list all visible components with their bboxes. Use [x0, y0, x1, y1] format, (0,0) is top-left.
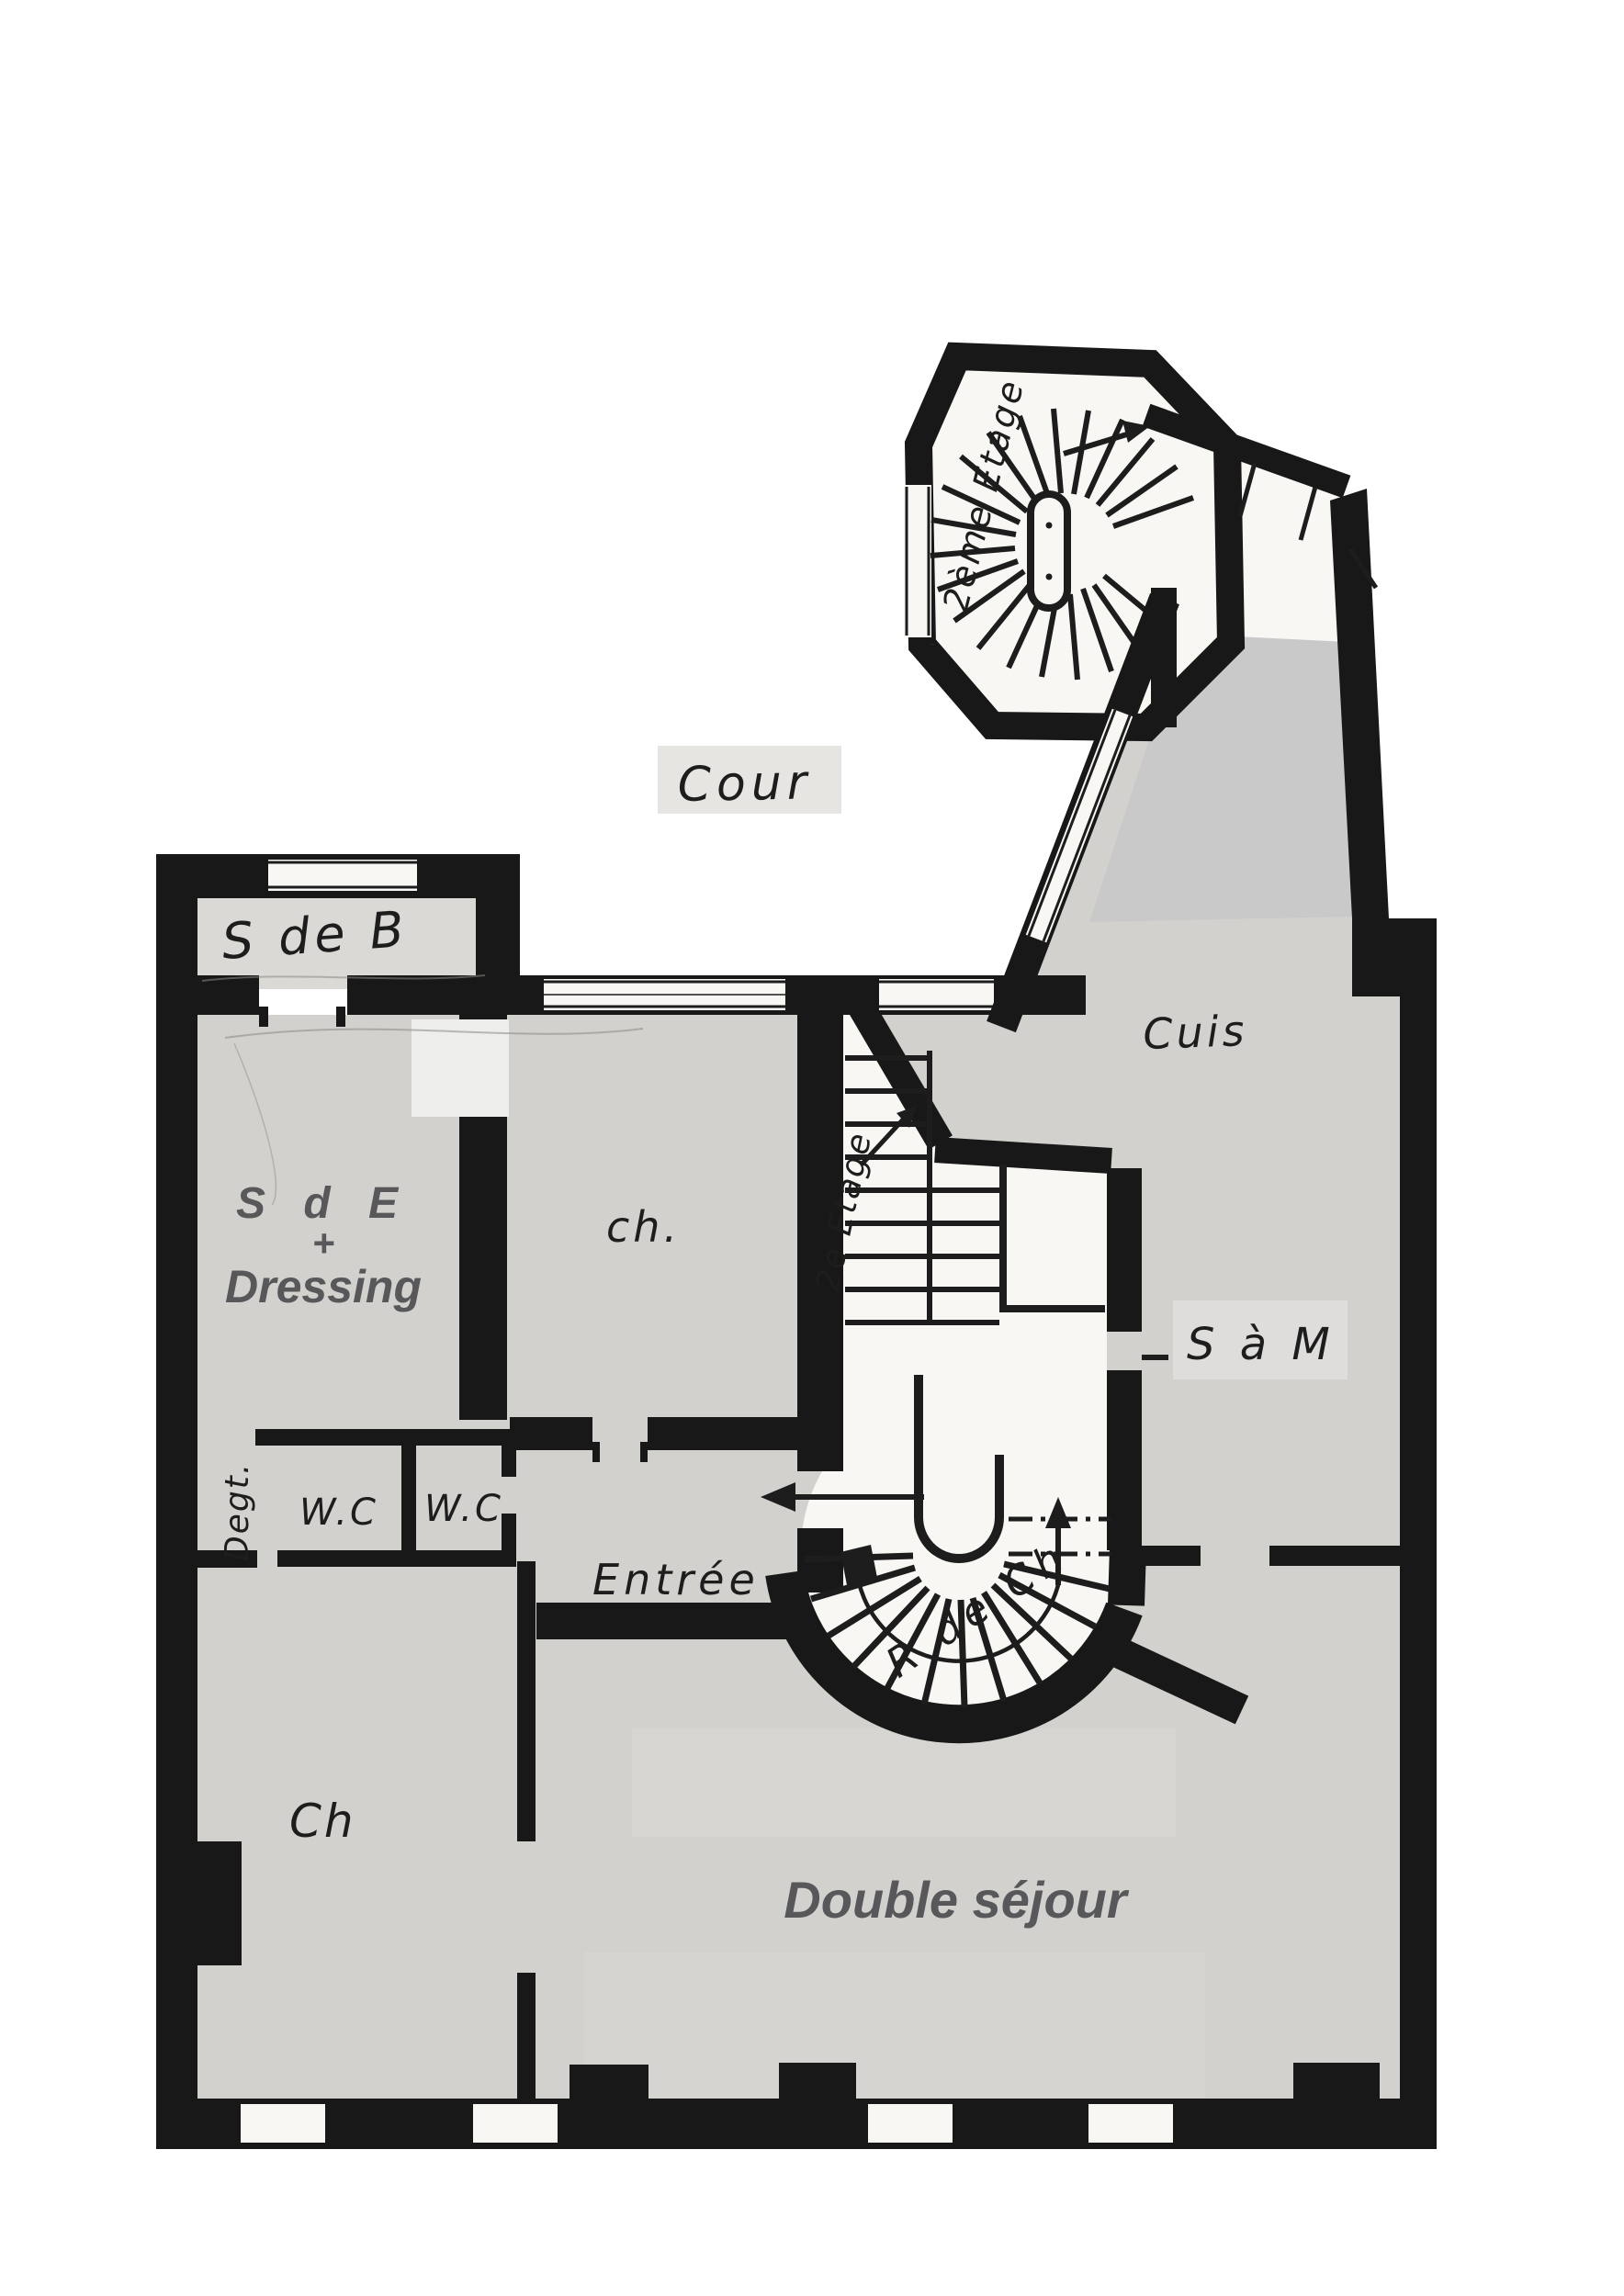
chambre-bottom-label: Ch [289, 1795, 356, 1848]
sde-label-plus: + [312, 1221, 335, 1265]
erased-patch [584, 1953, 1205, 2098]
sde-label-line2: Dressing [225, 1261, 422, 1312]
floor-plan-svg: Cour S de B ch. Cuis S à M W.C W.C Degt.… [0, 0, 1624, 2296]
erased-patch [412, 1019, 509, 1117]
cuisine-label: Cuis [1142, 1006, 1248, 1059]
chambre-middle-label: ch. [606, 1202, 681, 1252]
wc-right-label: W.C [424, 1488, 503, 1530]
erased-patch [632, 1728, 1176, 1837]
floor-plan-page: Cour S de B ch. Cuis S à M W.C W.C Degt.… [0, 0, 1624, 2296]
wc-left-label: W.C [299, 1491, 378, 1534]
entree-label: Entrée [592, 1555, 760, 1604]
degagement-label: Degt. [219, 1462, 256, 1561]
double-sejour-label: Double séjour [784, 1871, 1130, 1929]
salle-a-manger-label: S à M [1187, 1319, 1336, 1370]
cour-label: Cour [677, 755, 812, 813]
